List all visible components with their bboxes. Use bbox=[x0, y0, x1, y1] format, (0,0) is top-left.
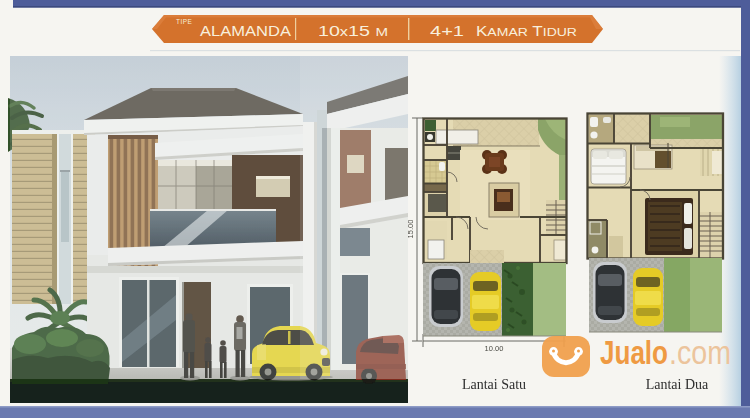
svg-text:Lantai Dua: Lantai Dua bbox=[646, 377, 709, 392]
svg-text:10.00: 10.00 bbox=[485, 344, 504, 353]
svg-text:.com: .com bbox=[669, 333, 731, 371]
svg-text:4+1: 4+1 bbox=[430, 22, 464, 39]
svg-text:15.00: 15.00 bbox=[406, 220, 415, 239]
svg-text:Lantai Satu: Lantai Satu bbox=[462, 377, 526, 392]
svg-text:Jualo: Jualo bbox=[600, 333, 668, 371]
svg-text:ALAMANDA: ALAMANDA bbox=[200, 22, 291, 39]
svg-text:TIPE: TIPE bbox=[176, 18, 193, 25]
svg-text:KAMAR TIDUR: KAMAR TIDUR bbox=[476, 23, 577, 39]
